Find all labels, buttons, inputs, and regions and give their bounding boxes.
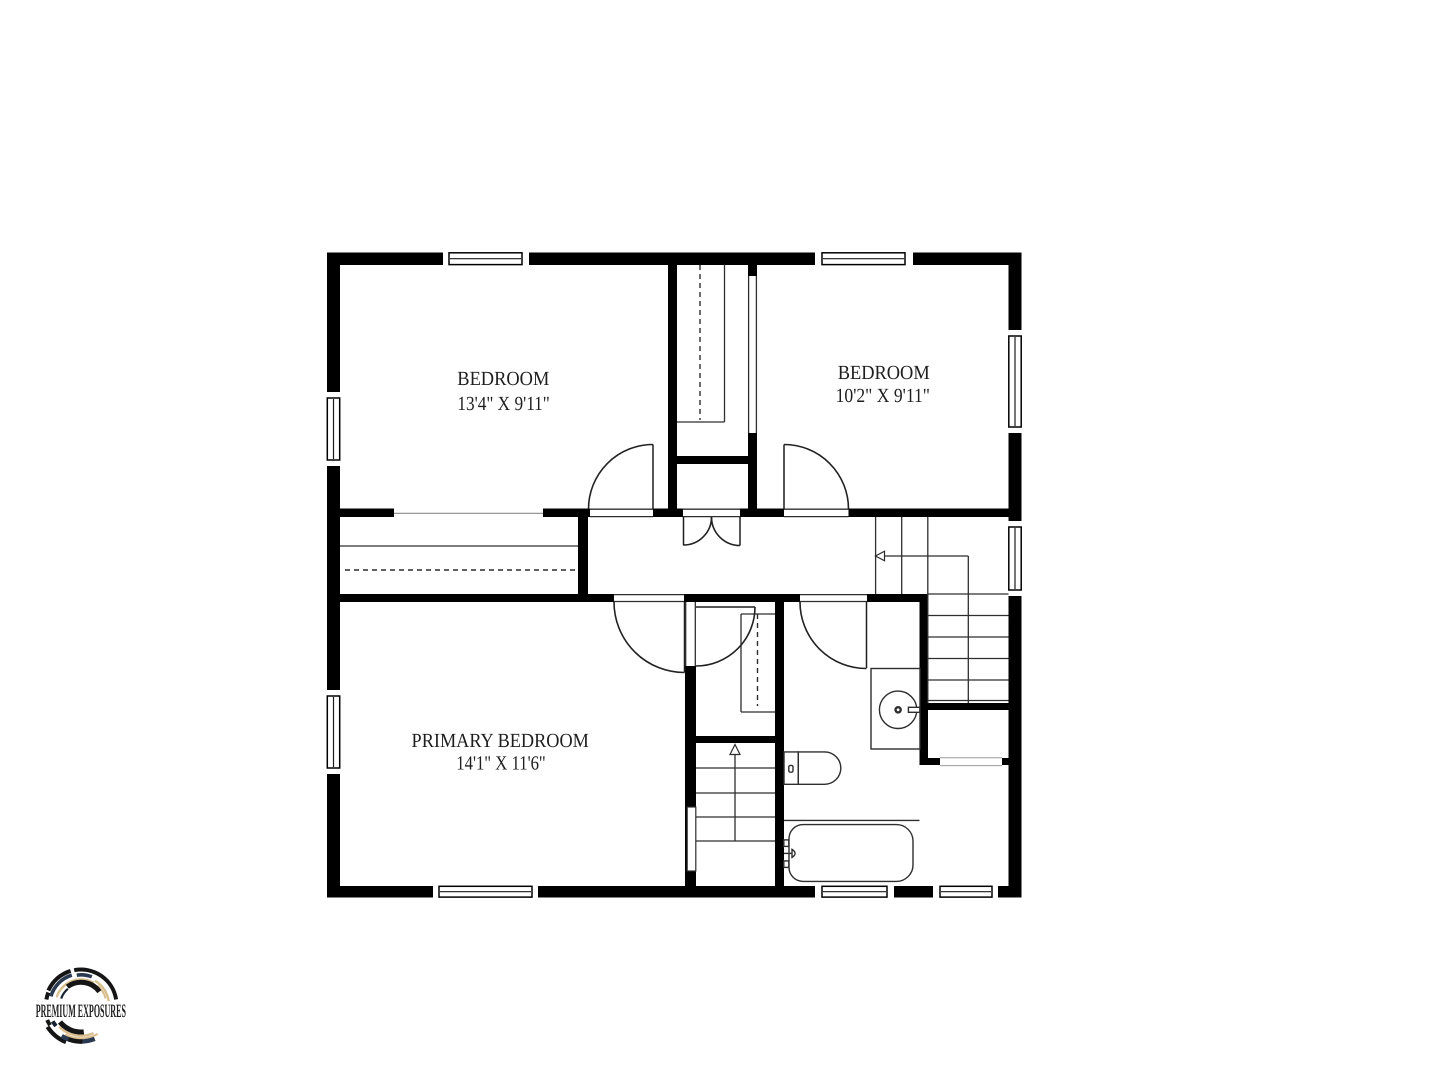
svg-text:14'1" X 11'6": 14'1" X 11'6": [456, 753, 546, 775]
svg-text:10'2" X 9'11": 10'2" X 9'11": [836, 385, 930, 407]
svg-text:BEDROOM: BEDROOM: [838, 362, 930, 384]
svg-text:BEDROOM: BEDROOM: [457, 368, 549, 390]
svg-text:PRIMARY BEDROOM: PRIMARY BEDROOM: [412, 730, 589, 752]
svg-text:13'4" X 9'11": 13'4" X 9'11": [457, 393, 550, 415]
svg-text:PREMIUM EXPOSURES: PREMIUM EXPOSURES: [36, 1001, 126, 1022]
